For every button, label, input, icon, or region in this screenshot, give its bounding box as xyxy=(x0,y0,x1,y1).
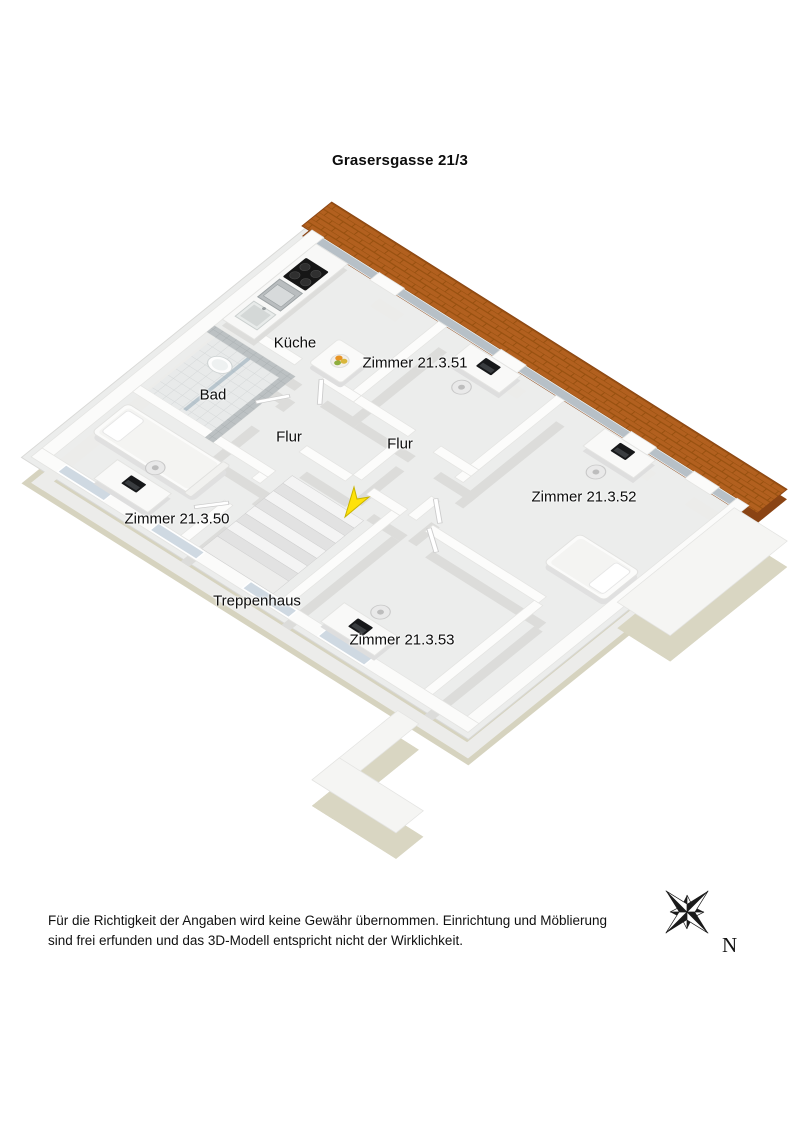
disclaimer-line-2: sind frei erfunden und das 3D-Modell ent… xyxy=(48,931,607,951)
room-label-zimmer-52: Zimmer 21.3.52 xyxy=(531,489,636,506)
compass-rose-icon: N xyxy=(666,891,737,957)
compass-north-label: N xyxy=(722,933,737,957)
room-label-bad: Bad xyxy=(200,387,227,404)
room-label-kueche: Küche xyxy=(274,335,317,352)
floorplan-3d-rendering: N xyxy=(0,0,800,1132)
room-label-flur-1: Flur xyxy=(276,429,302,446)
room-label-zimmer-53: Zimmer 21.3.53 xyxy=(349,632,454,649)
disclaimer-line-1: Für die Richtigkeit der Angaben wird kei… xyxy=(48,911,607,931)
floorplan-page: N Grasersgasse 21/3 Küche Zimmer 21.3.51… xyxy=(0,0,800,1132)
disclaimer-text: Für die Richtigkeit der Angaben wird kei… xyxy=(48,911,607,951)
room-label-treppenhaus: Treppenhaus xyxy=(213,593,301,610)
page-title: Grasersgasse 21/3 xyxy=(0,152,800,169)
room-label-zimmer-51: Zimmer 21.3.51 xyxy=(362,355,467,372)
room-label-zimmer-50: Zimmer 21.3.50 xyxy=(124,511,229,528)
room-label-flur-2: Flur xyxy=(387,436,413,453)
